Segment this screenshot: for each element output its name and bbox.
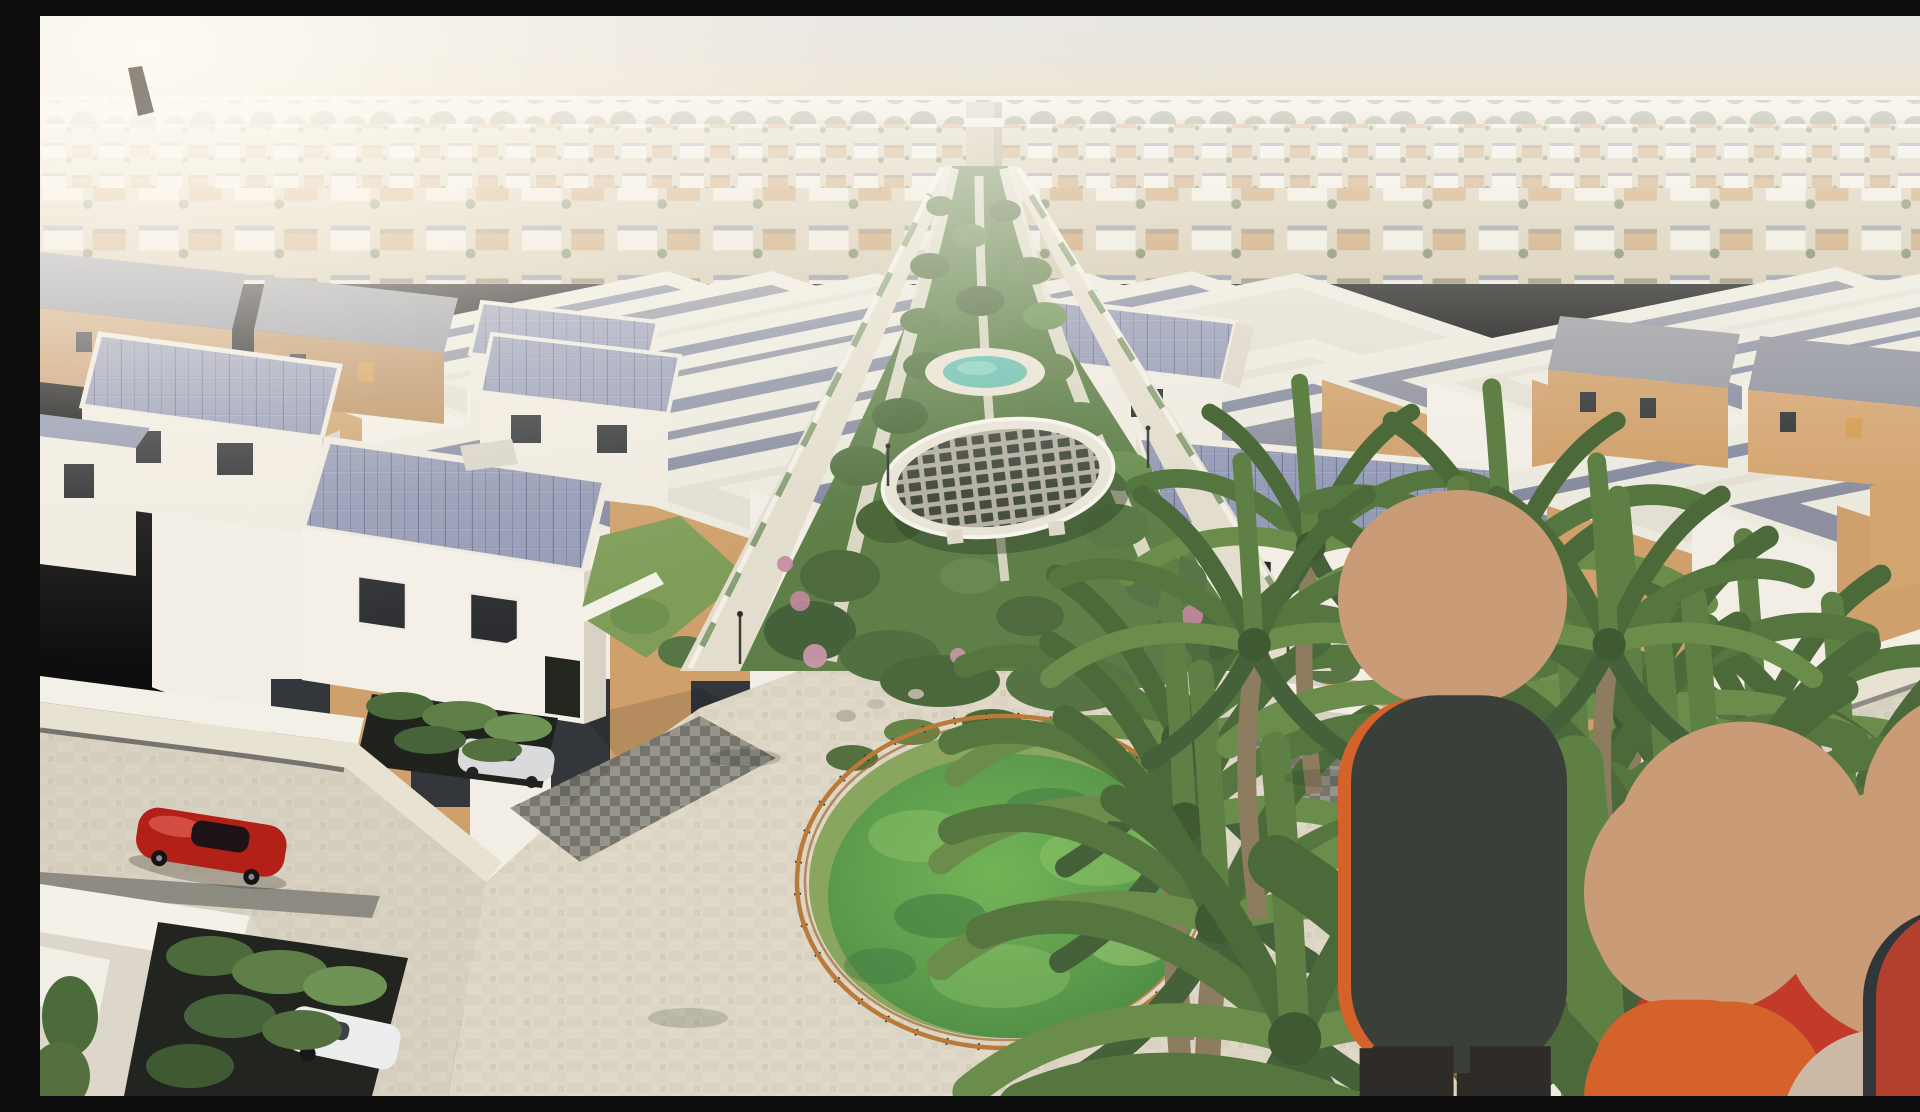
- aerial-render: Aerial architectural rendering of a sust…: [40, 16, 1920, 1096]
- render-image: [40, 16, 1920, 1096]
